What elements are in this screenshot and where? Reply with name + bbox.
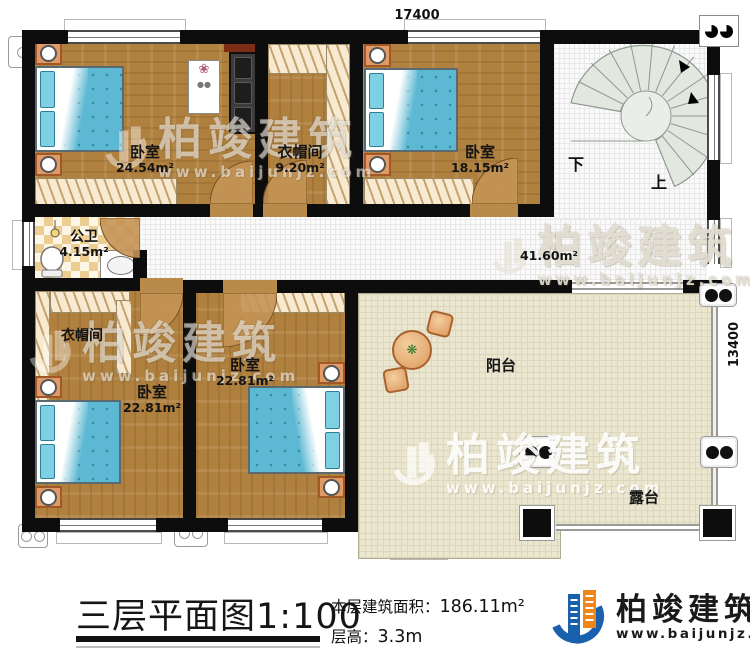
nightstand	[35, 42, 62, 65]
window-sill-bottom-1	[56, 532, 162, 544]
drawing-title: 三层平面图1:100	[76, 588, 362, 639]
nightstand	[35, 486, 62, 508]
room-label-terrace: 露台	[629, 489, 659, 506]
closet-cloak-top-a	[268, 44, 330, 74]
railing-terrace-right	[711, 293, 718, 533]
railing-terrace-bottom	[556, 524, 708, 531]
wall-bm-balcony	[345, 280, 358, 532]
title-underline-thin	[76, 646, 320, 648]
window-right-corridor	[707, 220, 720, 264]
closet-bedroom-tr	[364, 178, 474, 206]
floor-corridor	[140, 217, 707, 280]
nightstand	[364, 44, 391, 67]
stat-floor-area: 本层建筑面积：186.11m²	[331, 595, 525, 617]
bed-bedroom-tr	[364, 68, 458, 152]
room-label-balcony: 阳台	[486, 357, 516, 374]
terrace-post-right	[700, 436, 738, 468]
title-underline	[76, 636, 320, 642]
bed-bedroom-bm	[248, 386, 345, 474]
room-label-cloak-bottom: 衣帽间	[61, 328, 103, 344]
brand-name: 柏竣建筑	[616, 594, 750, 627]
window-right-stairs	[707, 75, 720, 160]
stat-floor-height: 层高：3.3m	[331, 625, 422, 647]
room-label-bedroom-tr: 卧室18.15m²	[451, 144, 509, 176]
floor-plan-canvas: 17400 13400	[0, 0, 750, 657]
nightstand	[318, 362, 345, 384]
door-gap-cloak-top	[263, 204, 307, 217]
stairs-down-label: 下	[568, 151, 584, 175]
terrace-pillar-left	[520, 506, 554, 540]
window-sill-right-1	[720, 73, 732, 164]
dimension-right: 13400	[727, 322, 742, 367]
door-arc-bedroom-bm	[223, 293, 277, 347]
brand-website: www.baijunjz.com	[616, 626, 750, 642]
nightstand	[364, 153, 391, 176]
door-gap-bedroom-bm	[223, 280, 277, 293]
room-label-bedroom-tl: 卧室24.54m²	[116, 144, 174, 176]
bed-bedroom-tl	[35, 66, 124, 152]
door-gap-bedroom-tr	[470, 204, 518, 217]
balcony-corner-ornament	[699, 283, 737, 307]
railing-balcony-top	[572, 282, 683, 290]
window-top-2	[408, 30, 540, 44]
bed-bedroom-bl	[35, 400, 121, 484]
nightstand	[35, 376, 62, 398]
closet-cloak-top-b	[326, 44, 350, 206]
room-label-bedroom-bm: 卧室22.81m²	[216, 357, 274, 389]
terrace-post-left	[519, 436, 557, 468]
door-gap-bedroom-bl	[140, 278, 183, 293]
window-bottom-2	[228, 518, 322, 532]
window-sill-right-2	[720, 218, 732, 268]
door-gap-bedroom-tl	[210, 204, 253, 217]
room-label-bedroom-bl: 卧室22.81m²	[123, 384, 181, 416]
room-label-hall-area: 41.60m²	[520, 249, 578, 263]
window-bottom-1	[60, 518, 156, 532]
door-arc-bedroom-tl	[210, 161, 253, 204]
wall-tr-stairs	[540, 30, 554, 217]
nightstand	[318, 476, 345, 498]
balcony-table: ❋	[392, 330, 432, 370]
stairs-up-label: 上	[651, 169, 667, 193]
floor-balcony-terrace	[358, 293, 717, 530]
wall-bl-bm	[183, 280, 196, 532]
wall-balcony-top-a	[352, 280, 572, 293]
door-arc-bedroom-bl	[140, 293, 183, 336]
window-left-bathroom	[22, 222, 35, 266]
terrace-pillar-right	[700, 506, 735, 540]
window-sill-bottom-2	[224, 532, 328, 544]
dimension-top: 17400	[394, 8, 439, 23]
wall-cloak-tr	[350, 30, 363, 217]
window-top-1	[68, 30, 180, 44]
room-label-cloak-top: 衣帽间9.20m²	[275, 144, 324, 176]
wall-bathroom-bottom	[22, 278, 140, 291]
closet-cloak-bottom-c	[116, 300, 132, 374]
art-frame: ❀●●	[188, 60, 220, 114]
brand-logo: 柏竣建筑 www.baijunjz.com	[546, 586, 750, 650]
balcony-chair	[382, 366, 410, 394]
flue-ornament	[699, 15, 739, 47]
tv-shelf	[224, 44, 257, 52]
brand-logo-icon	[546, 586, 606, 650]
nightstand	[35, 153, 62, 176]
room-label-bathroom: 公卫4.15m²	[59, 229, 108, 259]
closet-bedroom-tl	[35, 178, 177, 206]
tv-cabinet	[229, 52, 257, 134]
